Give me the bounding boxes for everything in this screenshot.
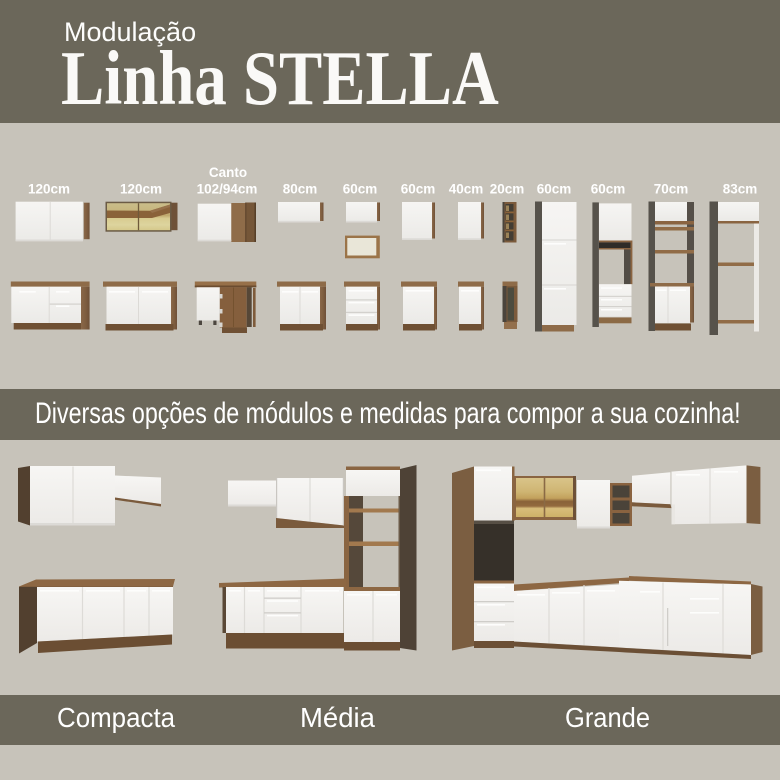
svg-text:80cm: 80cm [283, 182, 318, 197]
svg-text:102/94cm: 102/94cm [197, 182, 258, 197]
svg-text:Canto: Canto [209, 165, 247, 180]
svg-text:60cm: 60cm [343, 182, 378, 197]
svg-text:60cm: 60cm [591, 182, 626, 197]
svg-text:120cm: 120cm [120, 182, 162, 197]
svg-text:70cm: 70cm [654, 182, 689, 197]
svg-text:20cm: 20cm [490, 182, 525, 197]
svg-text:60cm: 60cm [537, 182, 572, 197]
svg-text:120cm: 120cm [28, 182, 70, 197]
svg-text:83cm: 83cm [723, 182, 758, 197]
svg-text:40cm: 40cm [449, 182, 484, 197]
svg-text:60cm: 60cm [401, 182, 436, 197]
